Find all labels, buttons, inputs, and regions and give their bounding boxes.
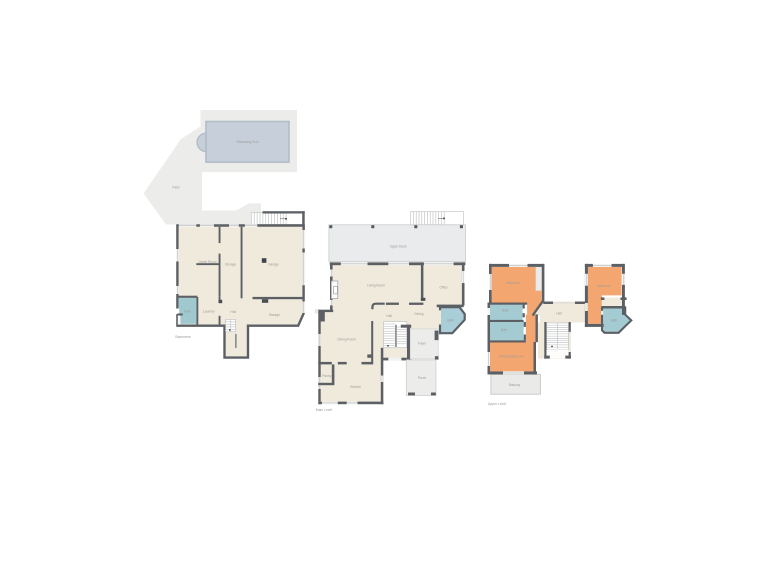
svg-text:Bedroom: Bedroom (507, 281, 520, 285)
svg-text:Hall: Hall (231, 310, 237, 314)
svg-text:Basement: Basement (175, 335, 190, 339)
svg-text:Garage: Garage (268, 263, 279, 267)
svg-text:Swimming Pool: Swimming Pool (237, 140, 259, 144)
svg-text:Balcony: Balcony (509, 383, 521, 387)
svg-text:Porch: Porch (418, 376, 427, 380)
svg-text:Bath: Bath (501, 328, 508, 332)
svg-text:Bath: Bath (502, 308, 509, 312)
svg-text:Office: Office (440, 286, 448, 290)
svg-text:Living Room: Living Room (367, 284, 385, 288)
svg-text:Laundry: Laundry (203, 309, 215, 313)
svg-text:Primary Bedroom: Primary Bedroom (499, 354, 524, 358)
svg-text:Storage: Storage (269, 313, 280, 317)
svg-text:Foyer: Foyer (418, 342, 427, 346)
svg-text:Pantry: Pantry (322, 374, 332, 378)
svg-text:Game Room: Game Room (198, 260, 216, 264)
svg-text:Bath: Bath (184, 309, 191, 313)
svg-text:Bath: Bath (611, 318, 618, 322)
svg-text:Upper Deck: Upper Deck (390, 244, 407, 248)
svg-text:Main Level: Main Level (316, 408, 333, 412)
svg-text:Hall: Hall (556, 311, 562, 315)
svg-text:Hall: Hall (386, 314, 392, 318)
svg-text:Storage: Storage (225, 263, 236, 267)
svg-text:Bedroom: Bedroom (598, 284, 611, 288)
svg-text:Kitchen: Kitchen (350, 385, 361, 389)
svg-text:Upper Level: Upper Level (488, 402, 507, 406)
svg-text:Dining: Dining (414, 312, 423, 316)
svg-text:Bath: Bath (447, 318, 454, 322)
svg-text:Patio: Patio (172, 186, 179, 190)
svg-text:Dining Room: Dining Room (337, 338, 356, 342)
